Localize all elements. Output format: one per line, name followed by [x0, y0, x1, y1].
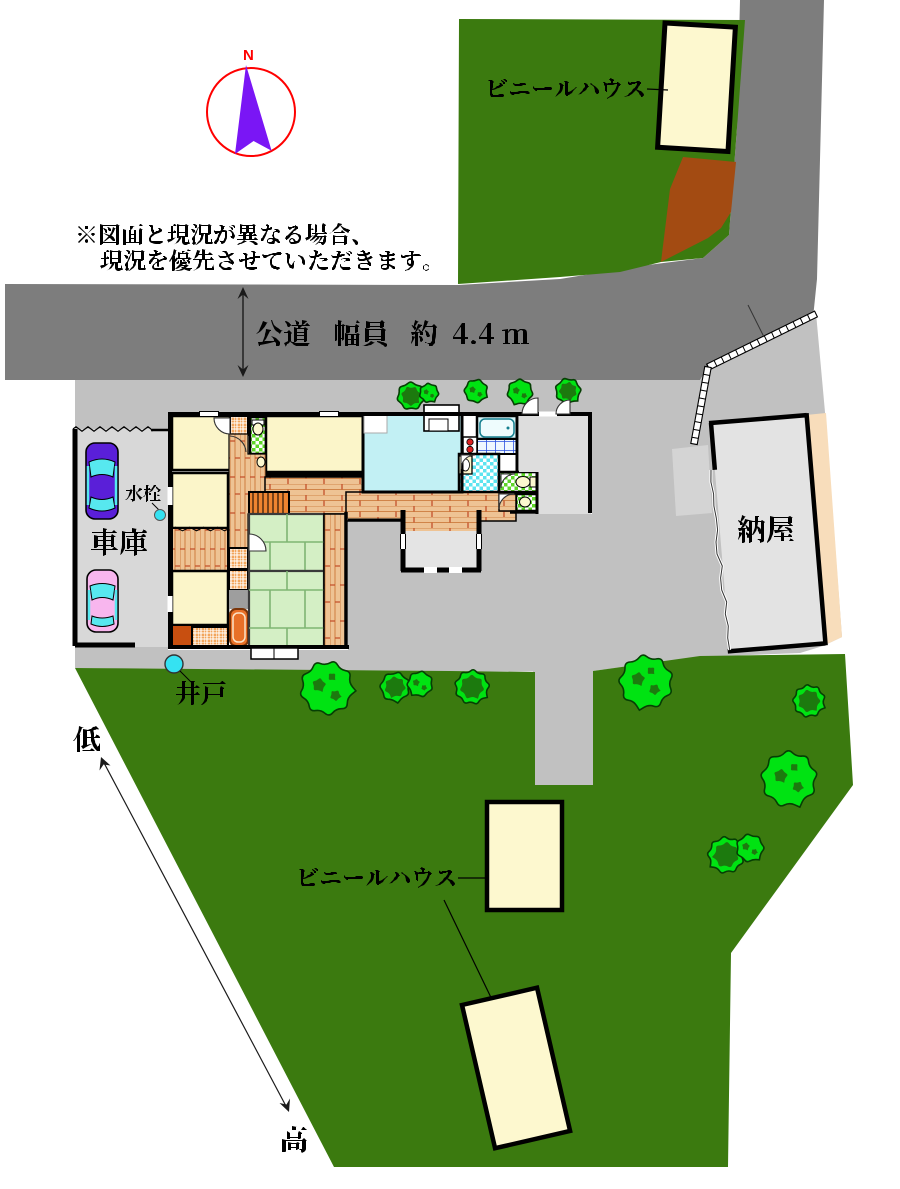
svg-text:N: N: [243, 47, 254, 64]
